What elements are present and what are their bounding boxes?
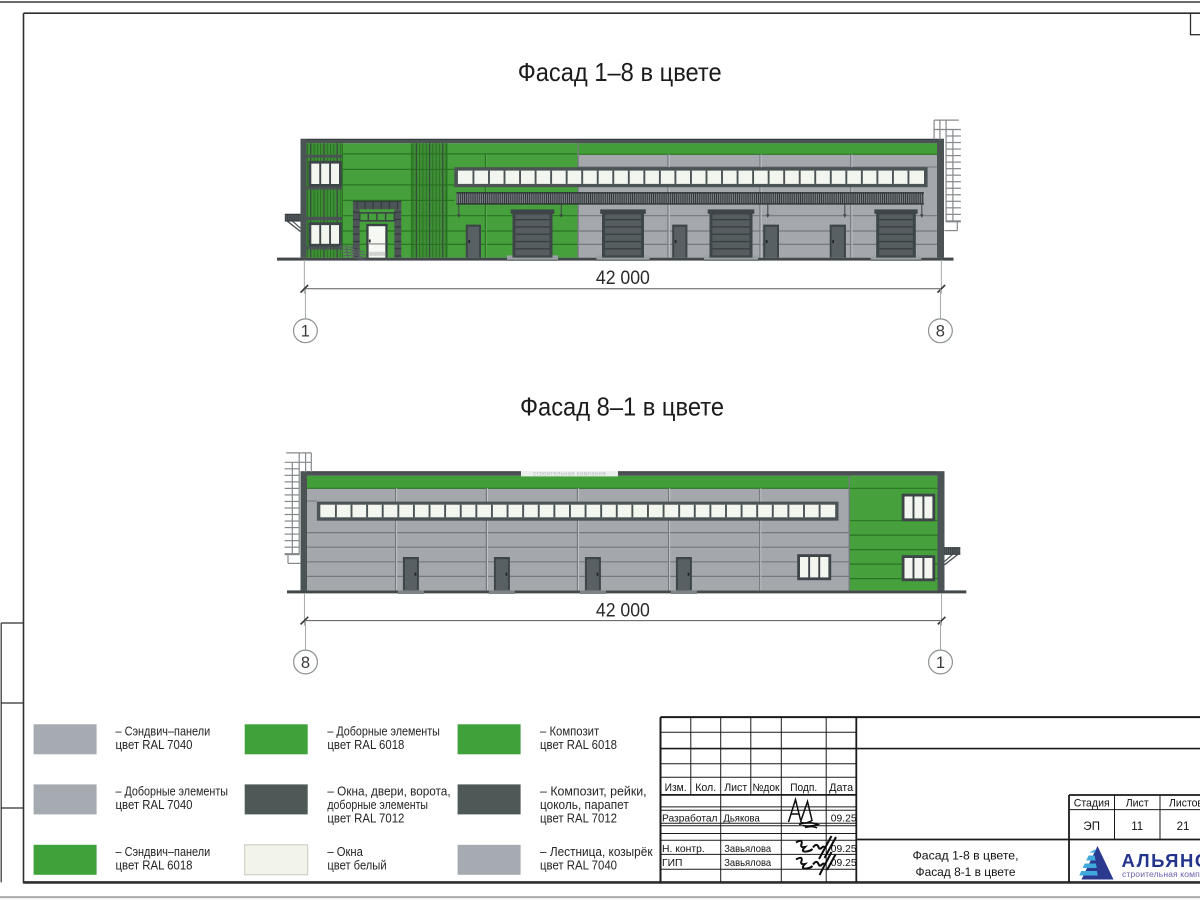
svg-text:ЭП: ЭП (1083, 821, 1100, 833)
svg-text:09.25: 09.25 (831, 858, 857, 869)
svg-text:цвет RAL 7040: цвет RAL 7040 (540, 857, 617, 872)
svg-text:строительная компания: строительная компания (533, 472, 606, 478)
svg-text:Листов: Листов (1169, 798, 1200, 810)
svg-text:11: 11 (1131, 821, 1143, 833)
svg-text:09.25: 09.25 (831, 844, 857, 855)
svg-text:Лист: Лист (1126, 798, 1149, 810)
svg-text:строительная компания: строительная компания (1122, 869, 1200, 879)
svg-text:09.25: 09.25 (831, 813, 857, 824)
svg-text:Н. контр.: Н. контр. (662, 844, 705, 855)
svg-text:8: 8 (936, 323, 945, 341)
svg-text:Лист: Лист (724, 782, 747, 794)
svg-text:Стадия: Стадия (1074, 798, 1110, 810)
svg-text:Подп.: Подп. (790, 782, 817, 794)
svg-text:цвет RAL 7040: цвет RAL 7040 (116, 797, 193, 812)
svg-text:42 000: 42 000 (596, 267, 650, 289)
svg-text:21: 21 (1177, 821, 1190, 833)
svg-text:цвет RAL 7012: цвет RAL 7012 (540, 810, 617, 825)
svg-text:1: 1 (936, 654, 945, 672)
svg-text:Дата: Дата (829, 782, 853, 794)
svg-text:Кол.: Кол. (695, 782, 716, 794)
svg-text:ГИП: ГИП (662, 858, 682, 869)
svg-text:Изм.: Изм. (665, 782, 687, 794)
svg-text:№док: №док (753, 782, 780, 794)
svg-text:Разработал: Разработал (662, 812, 718, 824)
svg-text:Фасад 1-8 в цвете,: Фасад 1-8 в цвете, (913, 849, 1019, 863)
svg-text:Дьякова: Дьякова (723, 813, 760, 824)
svg-text:1: 1 (301, 323, 310, 341)
svg-text:Завьялова: Завьялова (724, 844, 771, 855)
svg-text:цвет RAL 6018: цвет RAL 6018 (327, 737, 404, 752)
svg-text:Фасад 8-1 в цвете: Фасад 8-1 в цвете (916, 865, 1016, 879)
svg-text:цвет белый: цвет белый (327, 857, 386, 872)
svg-text:цвет RAL 7012: цвет RAL 7012 (327, 810, 404, 825)
svg-text:цвет RAL 7040: цвет RAL 7040 (116, 737, 193, 752)
svg-text:Завьялова: Завьялова (724, 858, 771, 869)
svg-text:Фасад 1–8 в цвете: Фасад 1–8 в цвете (518, 57, 722, 87)
svg-text:Фасад 8–1 в цвете: Фасад 8–1 в цвете (520, 392, 724, 422)
svg-text:8: 8 (301, 654, 310, 672)
svg-text:42 000: 42 000 (596, 599, 650, 621)
svg-text:цвет RAL 6018: цвет RAL 6018 (116, 857, 193, 872)
svg-text:АЛЬЯНС: АЛЬЯНС (1122, 850, 1200, 871)
svg-text:цвет RAL 6018: цвет RAL 6018 (540, 737, 617, 752)
